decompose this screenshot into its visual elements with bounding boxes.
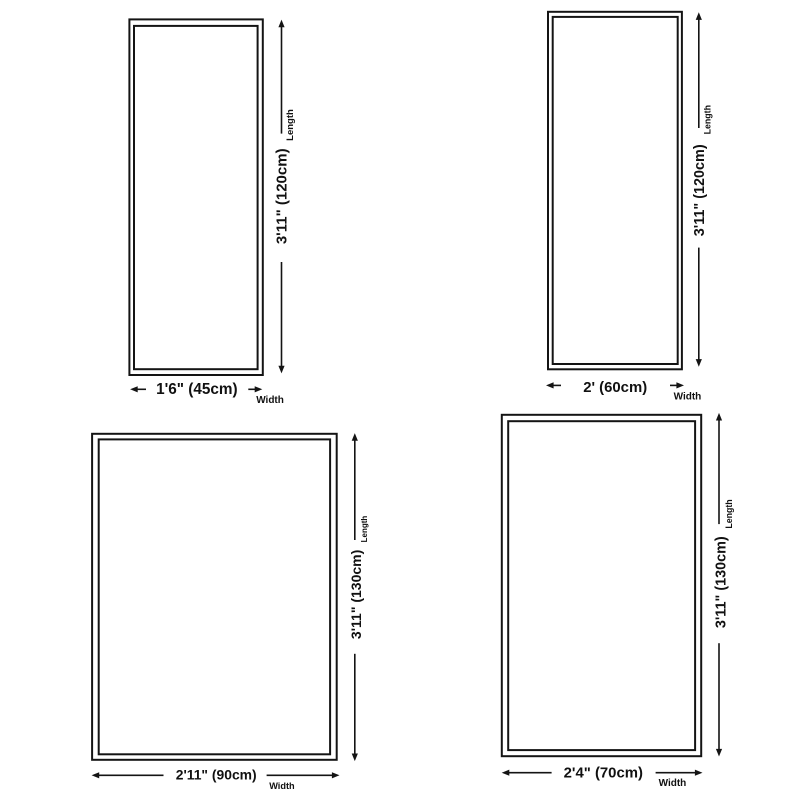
svg-text:Width: Width [674,391,702,402]
svg-text:3'11" (120cm): 3'11" (120cm) [273,148,290,244]
svg-text:3'11" (130cm): 3'11" (130cm) [714,536,730,628]
svg-text:2'11" (90cm): 2'11" (90cm) [176,767,257,783]
svg-text:3'11" (120cm): 3'11" (120cm) [692,144,708,236]
svg-text:3'11" (130cm): 3'11" (130cm) [348,550,364,639]
svg-text:Length: Length [285,109,296,141]
svg-text:2'4" (70cm): 2'4" (70cm) [564,765,643,781]
svg-text:1'6" (45cm): 1'6" (45cm) [156,381,237,398]
svg-text:Length: Length [703,105,713,134]
svg-text:Width: Width [659,778,687,789]
svg-text:Width: Width [256,395,284,406]
svg-text:Width: Width [269,781,295,791]
svg-text:2' (60cm): 2' (60cm) [583,380,647,396]
svg-text:Length: Length [360,516,369,543]
svg-text:Length: Length [724,499,734,528]
